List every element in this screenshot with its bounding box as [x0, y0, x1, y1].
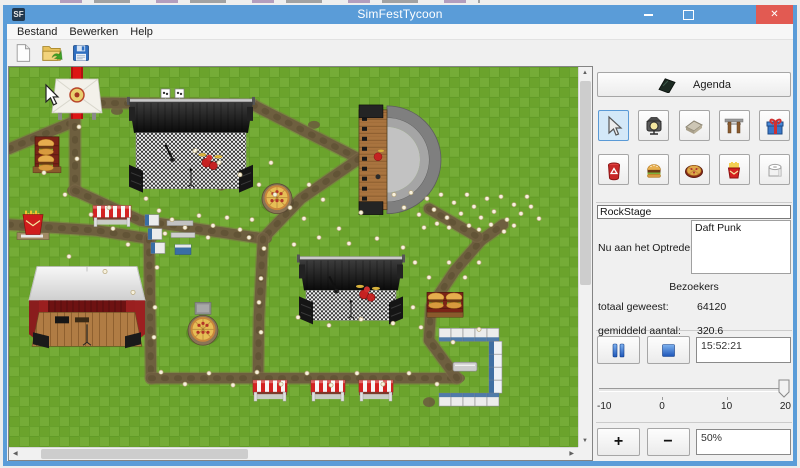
visitor-dot	[529, 205, 533, 209]
visitor-dot	[401, 245, 405, 249]
content: ▲ ▼ ◀ ▶ Agenda	[7, 66, 793, 461]
tick-label: 0	[659, 401, 665, 412]
visitor-dot	[413, 260, 417, 264]
tool-row-1	[597, 110, 791, 141]
minimize-icon	[644, 14, 653, 16]
toilet-roll-icon	[764, 159, 786, 181]
visitor-dot	[465, 193, 469, 197]
zoom-level-display: 50%	[696, 429, 791, 455]
visitor-dot	[359, 317, 363, 321]
open-file-button[interactable]	[41, 42, 63, 64]
visitor-dot	[391, 321, 395, 325]
visitor-dot	[327, 323, 331, 327]
tool-toilet-button[interactable]	[759, 154, 790, 185]
visitor-dot	[435, 221, 439, 225]
visitor-dot	[439, 193, 443, 197]
visitor-dot	[269, 161, 273, 165]
horizontal-scroll-thumb[interactable]	[41, 449, 248, 459]
visitor-dot	[217, 161, 221, 165]
visitor-dot	[288, 206, 292, 210]
visitor-dot	[447, 225, 451, 229]
save-file-button[interactable]	[70, 42, 92, 64]
close-icon: ✕	[770, 9, 778, 20]
scroll-up-icon[interactable]: ▲	[582, 70, 588, 76]
visitor-dot	[451, 340, 455, 344]
total-value: 64120	[697, 301, 726, 313]
visitor-dot	[512, 203, 516, 207]
stop-icon	[661, 343, 676, 358]
visitor-dot	[197, 214, 201, 218]
tool-select-button[interactable]	[598, 110, 629, 141]
visitor-dot	[307, 183, 311, 187]
visitor-dot	[302, 217, 306, 221]
visitor-dot	[206, 235, 210, 239]
visitors-header: Bezoekers	[597, 281, 791, 293]
visitor-dot	[392, 193, 396, 197]
visitor-dot	[257, 183, 261, 187]
visitor-dot	[77, 125, 81, 129]
now-playing-value: Daft Punk	[695, 222, 741, 234]
visitor-dot	[489, 222, 493, 226]
visitor-dot	[262, 246, 266, 250]
stage-info-section: Nu aan het Optreden: Daft Punk Bezoekers…	[596, 202, 792, 330]
tool-pizza-button[interactable]	[679, 154, 710, 185]
tool-row-2	[597, 154, 791, 185]
visitor-dot	[347, 241, 351, 245]
visitor-dot	[259, 330, 263, 334]
visitor-dot	[225, 216, 229, 220]
tick-label: 10	[721, 401, 732, 412]
slider-track[interactable]	[599, 388, 789, 392]
visitor-dot	[505, 218, 509, 222]
visitor-dot	[257, 300, 261, 304]
average-row: gemiddeld aantal: 320.6	[597, 317, 791, 341]
visitor-dot	[519, 212, 523, 216]
visitor-dot	[447, 260, 451, 264]
visitor-dot	[163, 231, 167, 235]
visitor-dot	[422, 225, 426, 229]
map-vertical-scrollbar[interactable]: ▲ ▼	[578, 67, 592, 447]
rock-stage[interactable]	[127, 97, 255, 193]
visitor-dot	[381, 382, 385, 386]
slider-thumb[interactable]	[778, 379, 790, 401]
visitor-dot	[273, 193, 277, 197]
visitor-dot	[492, 210, 496, 214]
visitor-dot	[144, 197, 148, 201]
titlebar[interactable]: SF SimFestTycoon ✕	[7, 5, 793, 24]
visitor-dot	[292, 242, 296, 246]
now-playing-row: Nu aan het Optreden: Daft Punk	[597, 220, 791, 276]
transport-section: 15:52:21 -10 0 10 20	[596, 330, 792, 422]
new-file-icon	[13, 43, 33, 63]
visitor-dot	[75, 157, 79, 161]
visitor-dot	[459, 212, 463, 216]
zoom-in-button[interactable]: +	[597, 428, 640, 456]
vertical-scroll-thumb[interactable]	[580, 81, 591, 285]
visitor-dot	[247, 235, 251, 239]
visitor-dot	[452, 201, 456, 205]
trash-icon	[603, 159, 625, 181]
visitor-dot	[255, 370, 259, 374]
speed-slider[interactable]: -10 0 10 20	[597, 373, 791, 415]
app-window: SF SimFestTycoon ✕ Bestand Bewerken Help	[3, 5, 797, 466]
visitor-dot	[67, 254, 71, 258]
visitor-dot	[537, 217, 541, 221]
visitor-dot	[159, 370, 163, 374]
visitor-dot	[329, 383, 333, 387]
visitor-dot	[432, 208, 436, 212]
now-playing-box: Daft Punk	[691, 220, 791, 274]
pause-icon	[611, 343, 626, 358]
tool-gift-button[interactable]	[759, 110, 790, 141]
tool-burger-button[interactable]	[638, 154, 669, 185]
total-row: totaal geweest: 64120	[597, 293, 791, 317]
visitor-dot	[477, 260, 481, 264]
visitor-dot	[279, 382, 283, 386]
visitor-dot	[512, 223, 516, 227]
visitor-dot	[170, 218, 174, 222]
tool-trash-button[interactable]	[598, 154, 629, 185]
tools-section: Agenda	[596, 66, 792, 202]
visitor-dot	[152, 335, 156, 339]
map-area: ▲ ▼ ◀ ▶	[8, 66, 593, 461]
minus-icon: −	[663, 435, 672, 449]
visitor-dot	[317, 235, 321, 239]
visitor-dot	[407, 371, 411, 375]
average-label: gemiddeld aantal:	[598, 325, 681, 337]
average-value: 320.6	[697, 325, 723, 337]
visitor-dot	[183, 382, 187, 386]
visitor-dot	[103, 269, 107, 273]
visitor-dot	[359, 211, 363, 215]
visitor-dot	[419, 325, 423, 329]
agenda-icon	[657, 77, 677, 93]
visitor-dot	[425, 197, 429, 201]
burger-stand[interactable]	[427, 292, 463, 317]
close-button[interactable]: ✕	[756, 5, 793, 24]
visitor-dot	[131, 290, 135, 294]
visitor-dot	[238, 173, 242, 177]
side-panel: Agenda	[596, 66, 792, 461]
market-stall[interactable]	[93, 206, 131, 227]
visitor-dot	[485, 197, 489, 201]
visitor-dot	[207, 371, 211, 375]
visitor-dot	[193, 149, 197, 153]
bench[interactable]	[453, 362, 477, 371]
visitor-dot	[479, 216, 483, 220]
visitor-dot	[467, 223, 471, 227]
scroll-right-icon[interactable]: ▶	[569, 451, 574, 457]
visitor-dot	[238, 227, 242, 231]
map-canvas[interactable]	[9, 67, 578, 447]
visitor-dot	[250, 218, 254, 222]
visitor-dot	[296, 315, 300, 319]
visitor-dot	[445, 216, 449, 220]
visitor-dot	[472, 205, 476, 209]
visitor-dot	[107, 206, 111, 210]
menu-bewerken[interactable]: Bewerken	[63, 26, 124, 38]
visitor-dot	[502, 229, 506, 233]
now-playing-label: Nu aan het Optreden:	[598, 242, 699, 254]
market-stall[interactable]	[311, 380, 345, 401]
visitor-dot	[411, 305, 415, 309]
visitor-dot	[155, 265, 159, 269]
burger-icon	[643, 159, 665, 181]
pizza-icon	[683, 159, 705, 181]
fries-icon	[723, 159, 745, 181]
new-file-button[interactable]	[12, 42, 34, 64]
visitor-dot	[321, 198, 325, 202]
menu-bestand[interactable]: Bestand	[11, 26, 63, 38]
visitor-dot	[183, 225, 187, 229]
agenda-label: Agenda	[693, 79, 731, 91]
visitor-dot	[89, 213, 93, 217]
stage-light-icon	[643, 115, 665, 137]
visitor-dot	[259, 276, 263, 280]
zoom-section: + − 50%	[596, 422, 792, 459]
path-tile-icon	[683, 115, 705, 137]
visitor-dot	[463, 275, 467, 279]
visitor-dot	[417, 213, 421, 217]
visitor-dot	[305, 371, 309, 375]
plus-icon: +	[614, 435, 623, 449]
gate-icon	[723, 115, 745, 137]
tick-label: 20	[780, 401, 791, 412]
tool-path-button[interactable]	[679, 110, 710, 141]
zoom-out-button[interactable]: −	[647, 428, 690, 456]
visitor-dot	[337, 226, 341, 230]
gift-icon	[764, 115, 786, 137]
visitor-dot	[211, 223, 215, 227]
visitor-dot	[477, 327, 481, 331]
tick-label: -10	[597, 401, 611, 412]
burger-stand[interactable]	[33, 137, 61, 173]
toolbar	[7, 40, 793, 66]
visitor-dot	[157, 209, 161, 213]
market-stall[interactable]	[359, 380, 393, 401]
visitor-dot	[42, 171, 46, 175]
visitor-dot	[402, 206, 406, 210]
open-file-icon	[41, 42, 63, 64]
visitor-dot	[231, 383, 235, 387]
save-file-icon	[71, 43, 91, 63]
map-horizontal-scrollbar[interactable]: ◀ ▶	[9, 447, 578, 460]
visitor-dot	[409, 191, 413, 195]
tool-light-button[interactable]	[638, 110, 669, 141]
visitor-dot	[499, 195, 503, 199]
visitor-dot	[435, 382, 439, 386]
visitor-dot	[355, 371, 359, 375]
stage-name-input[interactable]	[597, 205, 791, 219]
cursor-icon	[603, 115, 625, 137]
agenda-button[interactable]: Agenda	[597, 72, 791, 97]
visitor-dot	[126, 242, 130, 246]
visitor-dot	[477, 227, 481, 231]
visitor-dot	[111, 226, 115, 230]
visitor-dot	[427, 275, 431, 279]
barn-stage[interactable]	[29, 266, 145, 348]
visitor-dot	[525, 195, 529, 199]
maximize-icon	[683, 10, 694, 20]
tool-fries-button[interactable]	[719, 154, 750, 185]
visitor-dot	[375, 236, 379, 240]
menubar: Bestand Bewerken Help	[7, 24, 793, 40]
scroll-down-icon[interactable]: ▼	[582, 438, 588, 444]
visitor-dot	[153, 305, 157, 309]
maximize-button[interactable]	[675, 5, 701, 24]
minimize-button[interactable]	[635, 5, 661, 24]
visitor-dot	[63, 193, 67, 197]
total-label: totaal geweest:	[598, 301, 669, 313]
tool-gate-button[interactable]	[719, 110, 750, 141]
scrollbar-corner	[578, 447, 592, 460]
south-stage[interactable]	[297, 255, 405, 325]
scroll-left-icon[interactable]: ◀	[13, 451, 18, 457]
menu-help[interactable]: Help	[124, 26, 159, 38]
